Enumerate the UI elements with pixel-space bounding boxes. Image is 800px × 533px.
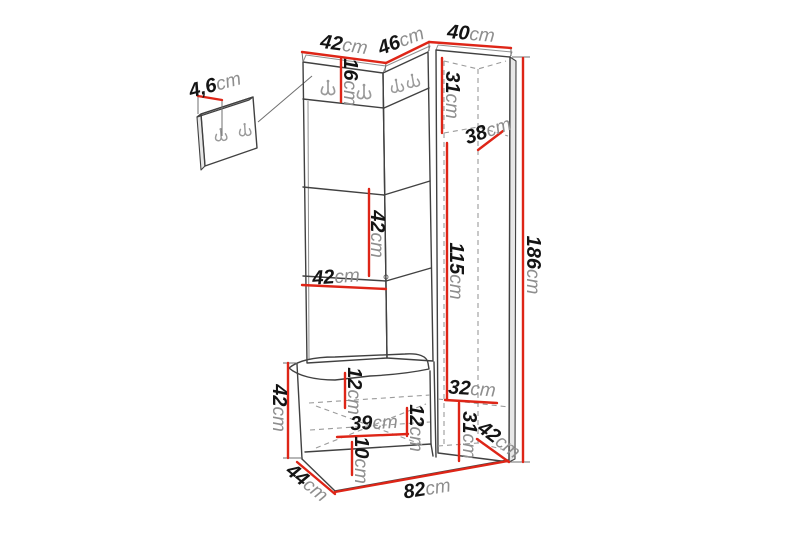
dim-label-lower-shelf-width: 32cm <box>448 376 497 401</box>
dim-label-top-corner-width: 46cm <box>374 22 427 60</box>
dim-label-top-right-width: 40cm <box>445 21 495 47</box>
dim-label-shelf-width: 42cm <box>311 264 361 289</box>
bench-front-right-edge <box>430 371 431 444</box>
dim-label-wall-panel-thickness: 4,6cm <box>186 67 244 102</box>
coat-hook-icon <box>390 78 404 93</box>
drawer-hidden-lines <box>309 395 430 403</box>
dim-label-bench-height: 42cm <box>268 383 290 432</box>
dim-label-overall-height: 186cm <box>522 236 544 295</box>
shelf-line <box>303 187 384 195</box>
dim-label-shelf-section-height: 42cm <box>366 209 388 258</box>
dim-label-drawer-width: 39cm <box>350 411 399 435</box>
bench-front-left-edge <box>297 364 302 459</box>
dim-label-hook-panel-height: 16cm <box>339 58 361 106</box>
dim-label-plinth-height: 10cm <box>350 436 372 484</box>
corner-panel <box>383 46 433 361</box>
dimension-diagram: 42cm 46cm 40cm 4,6cm 16cm 31cm 38cm 42cm… <box>0 0 800 533</box>
dim-label-drawer-height: 12cm <box>405 404 427 452</box>
corner-panel-outline <box>383 52 433 361</box>
coat-hook-icon <box>321 80 334 95</box>
dim-label-bench-top-gap: 12cm <box>343 367 365 415</box>
wall-panel-front <box>201 97 257 166</box>
dim-label-upper-right-section: 31cm <box>441 71 463 119</box>
coat-hook-icon <box>406 73 420 88</box>
dim-label-hanging-height: 115cm <box>445 242 467 299</box>
coat-hook-icon <box>215 128 227 141</box>
diagram-canvas: 42cm 46cm 40cm 4,6cm 16cm 31cm 38cm 42cm… <box>0 0 800 533</box>
coat-hook-icon <box>239 123 251 136</box>
dim-label-bench-depth: 44cm <box>281 459 333 507</box>
